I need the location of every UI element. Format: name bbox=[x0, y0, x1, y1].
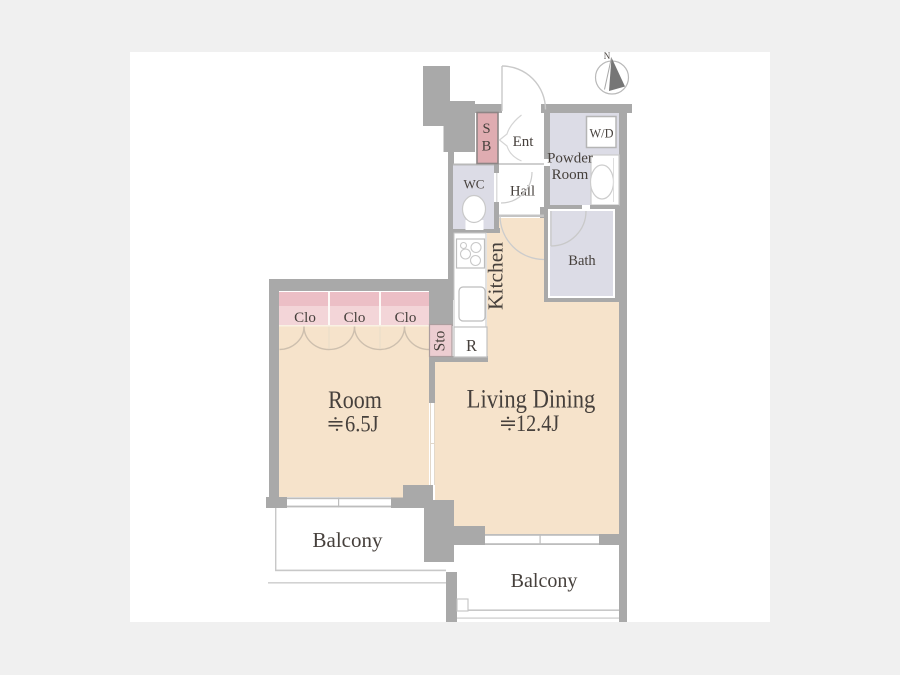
svg-text:Balcony: Balcony bbox=[313, 528, 383, 552]
svg-text:B: B bbox=[482, 139, 492, 155]
svg-text:N: N bbox=[604, 51, 611, 61]
svg-text:Sto: Sto bbox=[432, 330, 449, 351]
svg-text:Clo: Clo bbox=[395, 310, 417, 326]
svg-text:Balcony: Balcony bbox=[511, 570, 578, 592]
svg-text:Room: Room bbox=[552, 167, 589, 183]
svg-text:R: R bbox=[466, 336, 477, 355]
svg-text:Clo: Clo bbox=[294, 310, 316, 326]
svg-text:S: S bbox=[482, 121, 490, 137]
svg-text:Ent: Ent bbox=[513, 134, 535, 150]
svg-text:WC: WC bbox=[464, 177, 485, 192]
svg-text:Hall: Hall bbox=[510, 184, 535, 200]
svg-text:Living Dining: Living Dining bbox=[467, 385, 596, 414]
svg-text:6.5J: 6.5J bbox=[345, 410, 379, 437]
svg-text:Powder: Powder bbox=[547, 151, 593, 167]
svg-text:12.4J: 12.4J bbox=[516, 411, 559, 437]
svg-text:Bath: Bath bbox=[568, 253, 596, 269]
svg-text:Kitchen: Kitchen bbox=[484, 242, 508, 310]
svg-text:W/D: W/D bbox=[590, 127, 614, 141]
svg-text:Clo: Clo bbox=[344, 310, 366, 326]
